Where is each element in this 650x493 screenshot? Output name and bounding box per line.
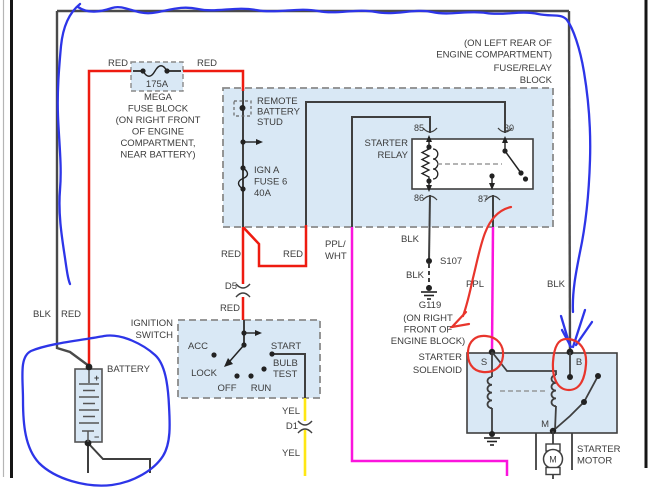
ign-fuse-label: FUSE 6 (254, 177, 287, 188)
mega-fuse-caption: FUSE BLOCK (128, 104, 189, 115)
wire-label-red: RED (220, 303, 240, 314)
ground-g119-label: G119 (419, 300, 442, 311)
wire-label-blk: BLK (33, 309, 52, 320)
relay-terminal-87: 87 (478, 194, 488, 204)
wire-label-blk: BLK (406, 270, 425, 281)
battery-minus-sign: − (94, 432, 99, 442)
ignition-switch-box (178, 320, 320, 398)
position-acc-label: ACC (188, 341, 208, 352)
battery-positive-terminal-dot (86, 364, 93, 371)
block-location-line: ENGINE COMPARTMENT) (436, 50, 552, 61)
wire-label-blk: BLK (401, 234, 420, 245)
wire-label-red: RED (283, 249, 303, 260)
g119-dot (426, 285, 432, 291)
block-location-line: FUSE/RELAY (494, 63, 553, 74)
mega-fuse-caption: (ON RIGHT FRONT (116, 115, 201, 126)
ground-symbol-icon (421, 292, 437, 299)
position-dot-acc (211, 352, 216, 357)
wire-label-red: RED (61, 309, 81, 320)
pull-in-to-m (555, 406, 556, 430)
ground-node-dot (489, 431, 495, 437)
arm-top-dot (595, 373, 601, 379)
ppl-wire-87-to-s (492, 227, 493, 351)
wire-label-yel: YEL (282, 448, 300, 459)
position-off-label: OFF (218, 383, 237, 394)
position-bulb-test-label: BULB (273, 358, 298, 369)
ignition-switch-label: SWITCH (136, 330, 174, 341)
position-lock-label: LOCK (191, 368, 218, 379)
starter-solenoid-label: STARTER (419, 352, 463, 363)
solenoid-terminal-m-label: M (541, 419, 549, 430)
wire-label-red: RED (197, 58, 217, 69)
black-cable-right-run-to-b (569, 11, 570, 351)
g119-location-line: ENGINE BLOCK) (391, 336, 465, 347)
wire-label-red: RED (108, 58, 128, 69)
motor-m-symbol: M (549, 455, 557, 465)
mega-fuse-caption: OF ENGINE (132, 127, 184, 138)
starter-relay-label: RELAY (378, 150, 409, 161)
starter-motor: M (536, 431, 572, 479)
ign-fuse-label: 40A (254, 188, 272, 199)
mega-fuse-caption: MEGA (144, 92, 173, 103)
d5-connector-icon (236, 284, 250, 288)
starter-circuit-wiring-diagram: + − (0, 0, 650, 493)
block-location-line: (ON LEFT REAR OF (464, 38, 552, 49)
position-dot-start (269, 351, 274, 356)
ground-symbol-icon (484, 438, 500, 445)
starter-solenoid-label: SOLENOID (413, 365, 462, 376)
remote-stud-label: STUD (257, 117, 283, 128)
s107-splice-dot (426, 258, 432, 264)
relay-terminal-30: 30 (504, 123, 514, 133)
g119-location-line: (ON RIGHT (403, 313, 453, 324)
battery-neg-stub-right (88, 443, 150, 473)
position-dot-bulb-test (261, 366, 266, 371)
connector-d1-label: D1 (286, 421, 298, 432)
block-location-line: BLOCK (520, 75, 553, 86)
solenoid-terminal-s-label: S (481, 357, 487, 368)
ignition-switch-label: IGNITION (131, 318, 173, 329)
starter-motor-label: STARTER (577, 444, 621, 455)
switch-contact-dot (523, 176, 528, 181)
wire-label-ppl: PPL (466, 279, 484, 290)
arm-mid-dot (581, 399, 587, 405)
position-start-label: START (271, 341, 301, 352)
starter-motor-label: MOTOR (577, 456, 612, 467)
battery-plus-sign: + (94, 373, 99, 383)
mega-fuse-caption: COMPARTMENT, (120, 138, 195, 149)
g119-location-line: FRONT OF (404, 325, 453, 336)
ign-fuse-label: IGN A (254, 165, 280, 176)
stud-terminal-dot (240, 105, 246, 111)
mega-fuse-rating: 175A (146, 79, 169, 90)
wire-label-ppl-wht: WHT (325, 251, 347, 262)
starter-solenoid (467, 349, 617, 445)
position-dot-off (234, 373, 239, 378)
wiring-diagram-page: + − (0, 0, 650, 493)
b-contact-dot (567, 374, 573, 380)
starter-relay-label: STARTER (365, 138, 409, 149)
position-bulb-test-label: TEST (273, 369, 297, 380)
d5-connector-icon-lower (236, 293, 250, 297)
starter-relay (412, 128, 533, 200)
blk-wire-86-to-s107 (429, 195, 430, 261)
remote-stud-label: BATTERY (257, 107, 301, 118)
battery: + − (75, 364, 102, 447)
solenoid-terminal-b-label: B (576, 357, 582, 368)
wire-label-blk: BLK (547, 279, 566, 290)
switch-arm-dot (518, 170, 523, 175)
wire-label-red: RED (221, 249, 241, 260)
battery-label: BATTERY (107, 364, 151, 375)
relay-terminal-85: 85 (414, 123, 424, 133)
relay-terminal-86: 86 (414, 193, 424, 203)
wire-label-ppl-wht: PPL/ (325, 239, 346, 250)
connector-d5-label: D5 (225, 281, 237, 292)
d1-connector-icon (298, 421, 312, 425)
blue-annotation-left-edge (58, 4, 80, 284)
position-dot-run (248, 373, 253, 378)
remote-stud-label: REMOTE (257, 96, 298, 107)
red-annotation-arrow-head (452, 312, 469, 327)
mega-fuse-caption: NEAR BATTERY) (120, 150, 195, 161)
motor-brush-bottom (546, 468, 560, 475)
wire-label-yel: YEL (282, 406, 300, 417)
position-run-label: RUN (251, 383, 272, 394)
splice-s107-label: S107 (440, 256, 462, 267)
